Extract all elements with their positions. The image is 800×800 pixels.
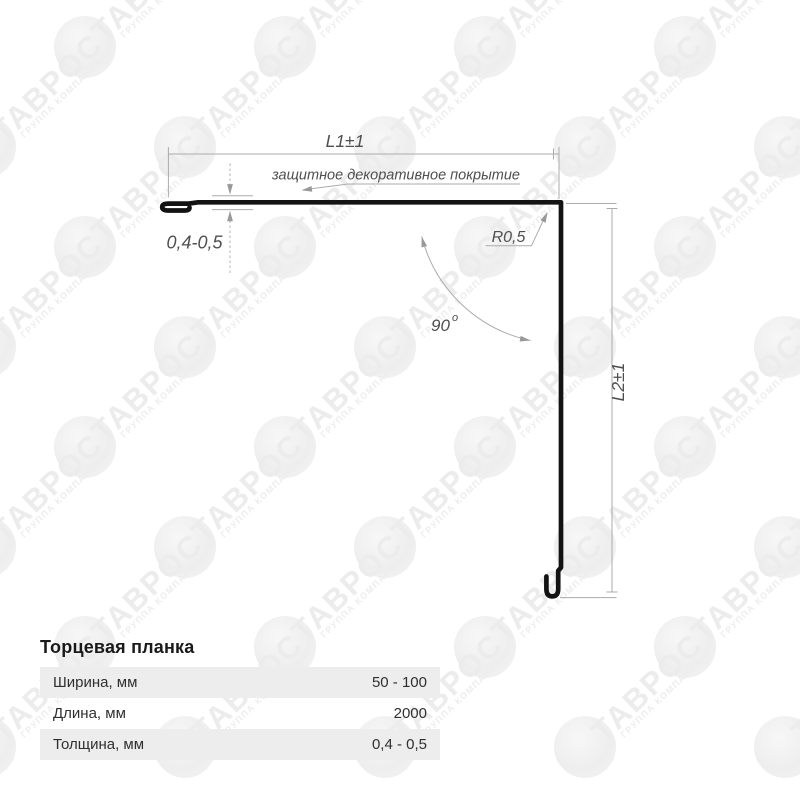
angle-degree-mark: o bbox=[452, 312, 458, 324]
spec-label: Ширина, мм bbox=[53, 674, 137, 691]
spec-row-length: Длина, мм 2000 bbox=[40, 698, 440, 729]
spec-row-thickness: Толщина, мм 0,4 - 0,5 bbox=[40, 729, 440, 760]
radius-label: R0,5 bbox=[492, 229, 526, 246]
spec-value: 50 - 100 bbox=[372, 674, 427, 691]
dimension-lines bbox=[168, 147, 617, 598]
spec-row-width: Ширина, мм 50 - 100 bbox=[40, 667, 440, 698]
spec-table: Ширина, мм 50 - 100 Длина, мм 2000 Толщи… bbox=[40, 667, 440, 760]
profile-outline bbox=[162, 202, 561, 596]
thickness-label: 0,4-0,5 bbox=[166, 233, 223, 253]
product-info: Торцевая планка Ширина, мм 50 - 100 Длин… bbox=[40, 637, 440, 760]
product-title: Торцевая планка bbox=[40, 637, 440, 657]
radius-arrowhead bbox=[540, 211, 550, 223]
arrowheads bbox=[227, 184, 550, 343]
thickness-bottom-arrowhead bbox=[227, 211, 233, 222]
coating-leader-line bbox=[304, 184, 521, 190]
spec-label: Длина, мм bbox=[53, 705, 126, 722]
spec-label: Толщина, мм bbox=[53, 736, 144, 753]
arc-end-arrowhead bbox=[520, 336, 531, 344]
page: ТАВРОСГРУППА КОМПАНИЙТАВРОСГРУППА КОМПАН… bbox=[0, 0, 800, 800]
coating-label: защитное декоративное покрытие bbox=[271, 168, 520, 184]
arc-start-arrowhead bbox=[419, 236, 427, 248]
spec-value: 0,4 - 0,5 bbox=[372, 736, 427, 753]
coating-arrowhead bbox=[301, 186, 312, 193]
thickness-top-arrowhead bbox=[227, 184, 233, 195]
l1-dim-label: L1±1 bbox=[326, 131, 365, 151]
angle-label: 90 bbox=[431, 316, 450, 335]
spec-value: 2000 bbox=[394, 705, 427, 722]
l2-dim-label: L2±1 bbox=[608, 363, 628, 402]
